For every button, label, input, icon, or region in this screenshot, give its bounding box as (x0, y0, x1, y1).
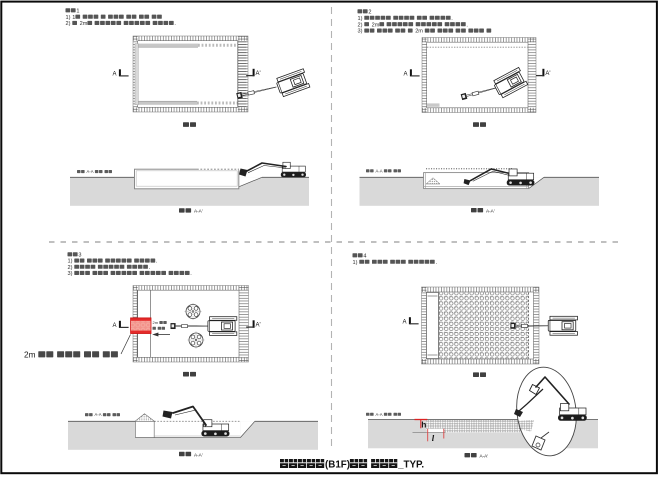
svg-text:1: 1 (76, 9, 79, 15)
svg-text:1): 1) (68, 259, 73, 265)
svg-text:3: 3 (78, 253, 81, 259)
svg-text:_TYP.: _TYP. (397, 460, 424, 471)
svg-text:1: 1 (72, 15, 75, 21)
svg-text:A': A' (256, 71, 261, 77)
svg-text:1): 1) (358, 16, 363, 22)
svg-text:2): 2) (66, 21, 71, 27)
svg-text:h: h (421, 420, 426, 430)
svg-text:2m: 2m (24, 350, 36, 360)
svg-text:A: A (403, 320, 407, 326)
svg-text:A-A': A-A' (486, 209, 495, 214)
svg-text:A: A (113, 323, 117, 329)
svg-text:A-A: A-A (95, 412, 102, 417)
svg-text:A-A': A-A' (194, 209, 203, 214)
svg-text:2m: 2m (415, 29, 423, 35)
svg-text:A': A' (256, 322, 261, 328)
svg-text:2): 2) (68, 265, 73, 271)
svg-text:A-A': A-A' (480, 454, 489, 459)
svg-text:A-A': A-A' (194, 452, 203, 457)
svg-text:3): 3) (68, 271, 73, 277)
svg-text:4: 4 (363, 254, 366, 260)
svg-text:A-A: A-A (376, 169, 383, 174)
svg-text:1): 1) (353, 260, 358, 266)
svg-text:A': A' (545, 71, 550, 77)
svg-text:A-A: A-A (376, 412, 383, 417)
svg-text:2): 2) (358, 22, 363, 28)
svg-text:A: A (404, 72, 408, 78)
svg-text:3): 3) (358, 29, 363, 35)
svg-text:2m: 2m (80, 21, 88, 27)
svg-text:1): 1) (66, 15, 71, 21)
svg-text:A: A (113, 72, 117, 78)
svg-text:2: 2 (368, 10, 371, 16)
svg-text:(B1F): (B1F) (325, 460, 350, 471)
svg-text:2m: 2m (153, 320, 159, 325)
svg-text:A-A: A-A (87, 169, 94, 174)
svg-text:2m: 2m (372, 22, 380, 28)
